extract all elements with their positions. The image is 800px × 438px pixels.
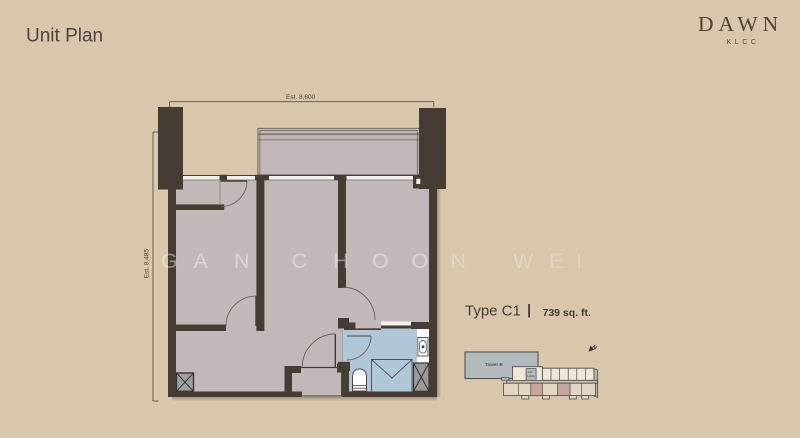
svg-text:DAWN: DAWN: [698, 12, 783, 36]
svg-text:Lobby: Lobby: [527, 374, 536, 378]
svg-text:739 sq. ft.: 739 sq. ft.: [543, 307, 592, 319]
svg-text:Type C1: Type C1: [465, 303, 521, 320]
svg-text:KLCC: KLCC: [727, 39, 760, 46]
svg-text:Est. 8,600: Est. 8,600: [286, 94, 316, 101]
svg-text:Tower B: Tower B: [485, 362, 503, 367]
svg-text:Est. 8,485: Est. 8,485: [143, 248, 150, 278]
svg-text:GANCHOO: GANCHOO: [161, 249, 428, 273]
svg-text:Unit Plan: Unit Plan: [26, 26, 103, 47]
